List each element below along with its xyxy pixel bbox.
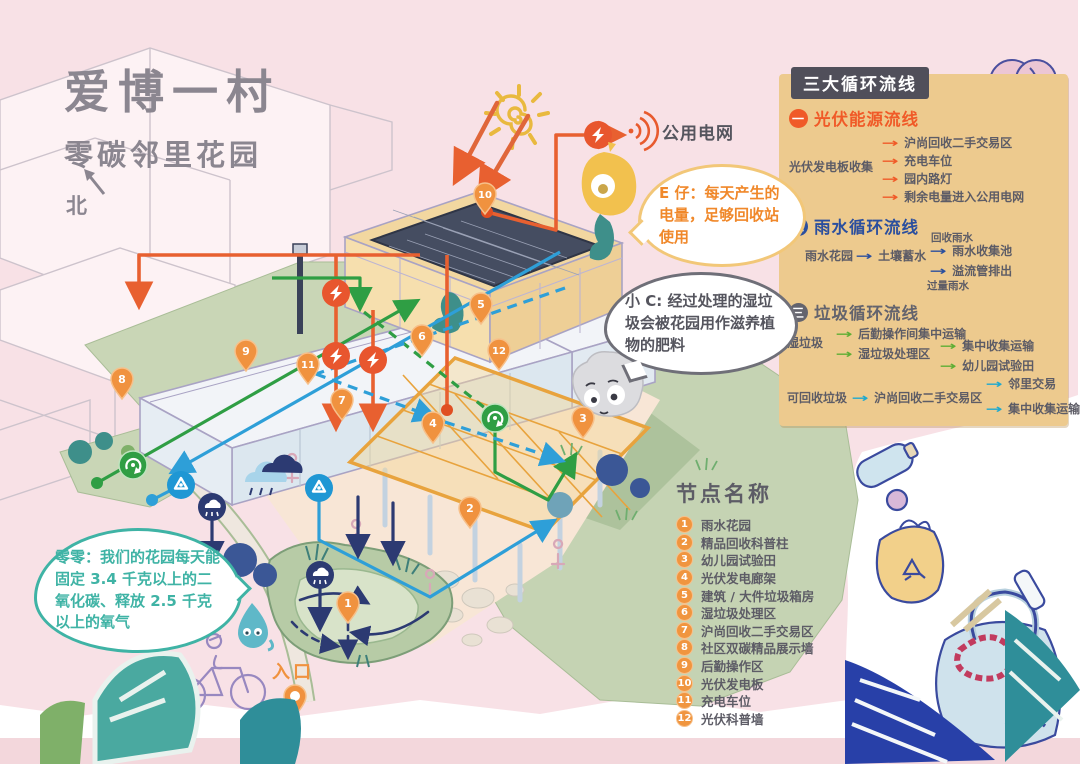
list-item: 3幼儿园试验田 bbox=[676, 551, 886, 569]
list-item: 4光伏发电廊架 bbox=[676, 569, 886, 587]
arrow-icon bbox=[881, 172, 898, 186]
list-item: 9后勤操作区 bbox=[676, 657, 886, 675]
pv-source: 光伏发电板收集 bbox=[789, 158, 873, 175]
svg-text:1: 1 bbox=[344, 597, 352, 610]
public-grid-label: 公用电网 bbox=[662, 123, 734, 144]
pv-target: 沪尚回收二手交易区 bbox=[883, 134, 1012, 151]
arrow-icon bbox=[835, 347, 852, 361]
svg-text:7: 7 bbox=[338, 394, 346, 407]
arrow-icon bbox=[855, 249, 872, 263]
list-item: 8社区双碳精品展示墙 bbox=[676, 639, 886, 657]
list-item: 10光伏发电板 bbox=[676, 674, 886, 692]
speech-bubble-xiao-c: 小 C: 经过处理的湿垃圾会被花园用作滋养植物的肥料 bbox=[604, 272, 798, 375]
wet-sub2: 幼儿园试验田 bbox=[941, 357, 1034, 374]
pv-target: 充电车位 bbox=[883, 152, 952, 169]
rain-garden-bush bbox=[253, 563, 277, 587]
node-number-icon: 11 bbox=[676, 692, 693, 709]
svg-text:2: 2 bbox=[466, 502, 474, 515]
recyclable-target: 沪尚回收二手交易区 bbox=[853, 389, 982, 406]
node-name-list: 节点名称 1雨水花园 2精品回收科普柱 3幼儿园试验田 4光伏发电廊架 5建筑 … bbox=[676, 478, 886, 727]
recycle-node-dot bbox=[146, 494, 158, 506]
rain-branch1: 雨水收集池 bbox=[931, 242, 1012, 259]
node-number-icon: 7 bbox=[676, 622, 693, 639]
svg-text:10: 10 bbox=[478, 190, 492, 201]
legend-section-photovoltaic: 一 光伏能源流线 bbox=[789, 106, 919, 130]
arrow-icon bbox=[985, 377, 1002, 391]
node-number-icon: 6 bbox=[676, 604, 693, 621]
wet-sub1: 集中收集运输 bbox=[941, 337, 1034, 354]
node-list-heading: 节点名称 bbox=[676, 478, 886, 508]
poster-canvas: 公用电网 北 入口 10 5 6 12 9 8 11 7 4 2 bbox=[0, 0, 1080, 764]
pv-target: 剩余电量进入公用电网 bbox=[883, 188, 1024, 205]
list-item: 11充电车位 bbox=[676, 692, 886, 710]
list-item: 12光伏科普墙 bbox=[676, 710, 886, 728]
node-number-icon: 3 bbox=[676, 551, 693, 568]
arrow-icon bbox=[929, 264, 946, 278]
entrance-label: 入口 bbox=[272, 662, 314, 683]
arrow-icon bbox=[835, 327, 852, 341]
rain-start: 雨水花园土壤蓄水 bbox=[805, 247, 926, 264]
poster-title-block: 爱博一村 零碳邻里花园 bbox=[64, 56, 280, 174]
recyclable-sub2: 集中收集运输 bbox=[987, 400, 1080, 417]
node-number-icon: 10 bbox=[676, 675, 693, 692]
list-item: 1雨水花园 bbox=[676, 516, 886, 534]
compost-node-dot bbox=[91, 477, 103, 489]
legend-section-waste: 三 垃圾循环流线 bbox=[789, 300, 919, 324]
legend-section-rainwater: 二 雨水循环流线 bbox=[789, 214, 919, 238]
list-item: 5建筑 / 大件垃圾箱房 bbox=[676, 586, 886, 604]
rain-branch2-label: 过量雨水 bbox=[927, 278, 969, 293]
node-number-icon: 9 bbox=[676, 657, 693, 674]
svg-text:11: 11 bbox=[301, 360, 315, 371]
svg-text:6: 6 bbox=[418, 330, 426, 343]
node-number-icon: 12 bbox=[676, 710, 693, 727]
svg-text:12: 12 bbox=[492, 346, 506, 357]
node-number-icon: 1 bbox=[676, 516, 693, 533]
list-item: 7沪尚回收二手交易区 bbox=[676, 622, 886, 640]
speech-bubble-e-zai: E 仔：每天产生的电量，足够回收站使用 bbox=[638, 164, 806, 267]
pv-target: 园内路灯 bbox=[883, 170, 952, 187]
node-number-icon: 5 bbox=[676, 587, 693, 604]
page-title: 爱博一村 bbox=[64, 56, 280, 122]
recyclable-sub1: 邻里交易 bbox=[987, 375, 1056, 392]
list-item: 6湿垃圾处理区 bbox=[676, 604, 886, 622]
node-number-icon: 2 bbox=[676, 534, 693, 551]
wet-target2: 湿垃圾处理区 bbox=[837, 345, 930, 362]
speech-bubble-ling-ling: 零零：我们的花园每天能固定 3.4 千克以上的二氧化碳、释放 2.5 千克以上的… bbox=[34, 528, 242, 653]
node-number-icon: 4 bbox=[676, 569, 693, 586]
svg-text:9: 9 bbox=[242, 345, 250, 358]
page-subtitle: 零碳邻里花园 bbox=[64, 132, 280, 174]
svg-text:5: 5 bbox=[477, 298, 485, 311]
legend-header: 三大循环流线 bbox=[791, 67, 929, 99]
list-item: 2精品回收科普柱 bbox=[676, 534, 886, 552]
node-number-icon: 8 bbox=[676, 639, 693, 656]
arrow-icon bbox=[881, 154, 898, 168]
arrow-icon bbox=[929, 244, 946, 258]
north-label: 北 bbox=[66, 194, 87, 218]
arrow-icon bbox=[939, 359, 956, 373]
section-number-icon: 一 bbox=[789, 109, 808, 128]
arrow-icon bbox=[985, 402, 1002, 416]
arrow-icon bbox=[939, 339, 956, 353]
recyclable-label: 可回收垃圾 bbox=[787, 389, 847, 406]
energy-node-dot bbox=[441, 404, 453, 416]
legend-panel: 三大循环流线 一 光伏能源流线 光伏发电板收集 沪尚回收二手交易区 充电车位 园… bbox=[779, 74, 1068, 426]
rain-branch2: 溢流管排出 bbox=[931, 262, 1012, 279]
arrow-icon bbox=[881, 190, 898, 204]
arrow-icon bbox=[851, 391, 868, 405]
svg-text:4: 4 bbox=[429, 417, 437, 430]
svg-text:3: 3 bbox=[579, 412, 587, 425]
svg-text:8: 8 bbox=[118, 373, 126, 386]
arrow-icon bbox=[881, 136, 898, 150]
